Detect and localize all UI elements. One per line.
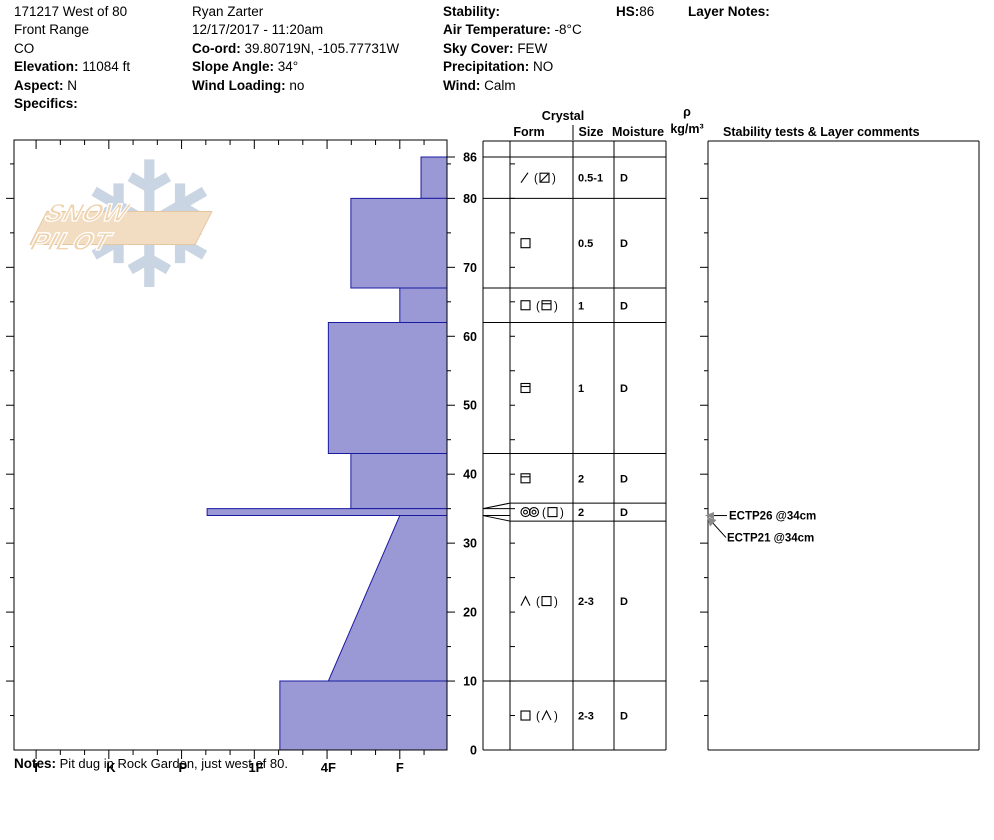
- hardness-axis-label: 4F: [321, 760, 336, 775]
- ect-result-2: ECTP21 @34cm: [727, 533, 814, 545]
- crystal-glyph-facet-rounding: [521, 383, 530, 392]
- layer-size-value: 1: [578, 383, 584, 395]
- layer-moisture-value: D: [620, 507, 628, 519]
- ect-result-1: ECTP26 @34cm: [729, 511, 816, 523]
- crystal-glyph-windpacked-slash: [541, 174, 548, 182]
- layer-moisture-value: D: [620, 596, 628, 608]
- crystal-paren: (: [534, 173, 538, 185]
- weak-layer-fan-line: [483, 516, 510, 522]
- crystal-glyph-facet-rounding: [542, 301, 551, 310]
- crystal-glyph-cup-inner: [524, 510, 528, 514]
- crystal-paren: ): [554, 301, 558, 313]
- depth-axis-label: 70: [463, 261, 477, 275]
- layer-moisture-value: D: [620, 473, 628, 485]
- table-header-form: Form: [513, 125, 544, 139]
- crystal-glyph-depth-hoar: [542, 711, 551, 720]
- crystal-glyph-facet-rounding: [521, 474, 530, 483]
- notes-label: Notes:: [14, 756, 56, 771]
- hardness-bar-layer: [328, 322, 447, 453]
- table-header-crystal: Crystal: [542, 109, 584, 123]
- crystal-glyph-facet: [542, 597, 551, 606]
- depth-axis-label: 86: [463, 151, 477, 165]
- table-header-density: ρ: [683, 105, 691, 119]
- hardness-bar-layer: [280, 681, 447, 750]
- layer-size-value: 2: [578, 507, 584, 519]
- crystal-glyph-depth-hoar: [521, 597, 530, 606]
- layer-moisture-value: D: [620, 711, 628, 723]
- crystal-paren: (: [542, 508, 546, 520]
- depth-axis-label: 20: [463, 606, 477, 620]
- layer-moisture-value: D: [620, 300, 628, 312]
- crystal-paren: ): [552, 173, 556, 185]
- crystal-glyph-facet: [521, 239, 530, 248]
- hardness-axis-label: F: [396, 760, 404, 775]
- weak-layer-fan-line: [483, 503, 510, 509]
- layer-size-value: 2: [578, 473, 584, 485]
- layer-moisture-value: D: [620, 173, 628, 185]
- layer-size-value: 2-3: [578, 596, 594, 608]
- layer-size-value: 2-3: [578, 711, 594, 723]
- layer-size-value: 0.5-1: [578, 173, 603, 185]
- depth-axis-label: 0: [470, 744, 477, 758]
- layer-moisture-value: D: [620, 383, 628, 395]
- hardness-bar-layer: [351, 198, 447, 288]
- crystal-paren: ): [554, 711, 558, 723]
- ect-arrow-line: [712, 522, 726, 538]
- layer-moisture-value: D: [620, 238, 628, 250]
- depth-axis-label: 50: [463, 399, 477, 413]
- table-header-size: Size: [578, 125, 603, 139]
- hardness-bar-layer: [400, 288, 447, 322]
- depth-axis-label: 40: [463, 468, 477, 482]
- crystal-glyph-facet: [521, 711, 530, 720]
- crystal-glyph-cup-outer: [530, 508, 539, 517]
- notes-text: Pit dug in Rock Garden, just west of 80.: [60, 756, 288, 771]
- depth-axis-label: 80: [463, 192, 477, 206]
- snowpit-report: 171217 West of 80 Front Range CO Elevati…: [0, 0, 994, 840]
- crystal-paren: (: [536, 597, 540, 609]
- crystal-glyph-cup-outer: [521, 508, 530, 517]
- table-header-density-units: kg/m³: [670, 122, 703, 136]
- table-header-comments: Stability tests & Layer comments: [723, 125, 920, 139]
- layer-size-value: 1: [578, 300, 584, 312]
- crystal-glyph-slash: [521, 173, 528, 183]
- hardness-bar-layer: [328, 516, 447, 681]
- crystal-glyph-cup-inner: [532, 510, 536, 514]
- snow-profile-chart: IKP1F4FF8680706050403020100CrystalFormSi…: [0, 0, 994, 840]
- hardness-bar-layer: [421, 157, 447, 198]
- table-header-moisture: Moisture: [612, 125, 664, 139]
- notes-line: Notes: Pit dug in Rock Garden, just west…: [14, 756, 288, 771]
- layer-size-value: 0.5: [578, 238, 593, 250]
- depth-axis-label: 10: [463, 675, 477, 689]
- crystal-glyph-facet: [521, 301, 530, 310]
- hardness-bar-layer: [351, 454, 447, 509]
- depth-axis-label: 30: [463, 537, 477, 551]
- hardness-bar-layer: [207, 509, 447, 516]
- crystal-paren: ): [554, 597, 558, 609]
- crystal-paren: (: [536, 711, 540, 723]
- crystal-paren: ): [560, 508, 564, 520]
- depth-axis-label: 60: [463, 330, 477, 344]
- crystal-paren: (: [536, 301, 540, 313]
- crystal-glyph-facet: [548, 508, 557, 517]
